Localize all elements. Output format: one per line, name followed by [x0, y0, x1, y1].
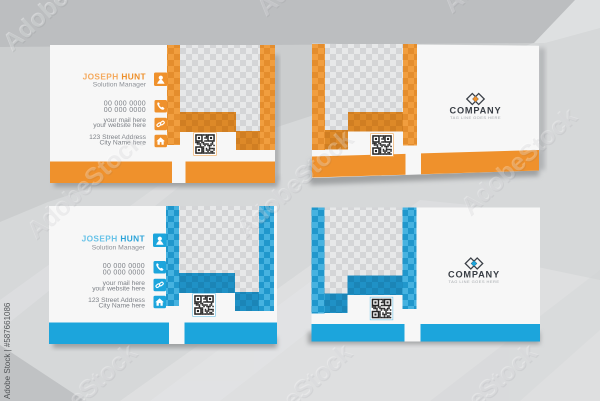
svg-text:TAG LINE GOES HERE: TAG LINE GOES HERE [449, 279, 500, 284]
svg-text:00 000 0000: 00 000 0000 [104, 107, 146, 114]
svg-text:your website here: your website here [92, 286, 145, 293]
svg-text:your website here: your website here [93, 122, 146, 129]
svg-text:TAG LINE GOES HERE: TAG LINE GOES HERE [450, 115, 501, 120]
svg-text:City Name here: City Name here [99, 303, 146, 310]
svg-text:00 000 0000: 00 000 0000 [103, 270, 145, 277]
svg-text:Adobe Stock | #587661086: Adobe Stock | #587661086 [3, 302, 12, 399]
svg-text:Solution Manager: Solution Manager [92, 245, 146, 252]
svg-text:Solution Manager: Solution Manager [93, 81, 147, 88]
svg-text:JOSEPH HUNT: JOSEPH HUNT [82, 234, 145, 244]
svg-text:JOSEPH HUNT: JOSEPH HUNT [83, 72, 146, 82]
